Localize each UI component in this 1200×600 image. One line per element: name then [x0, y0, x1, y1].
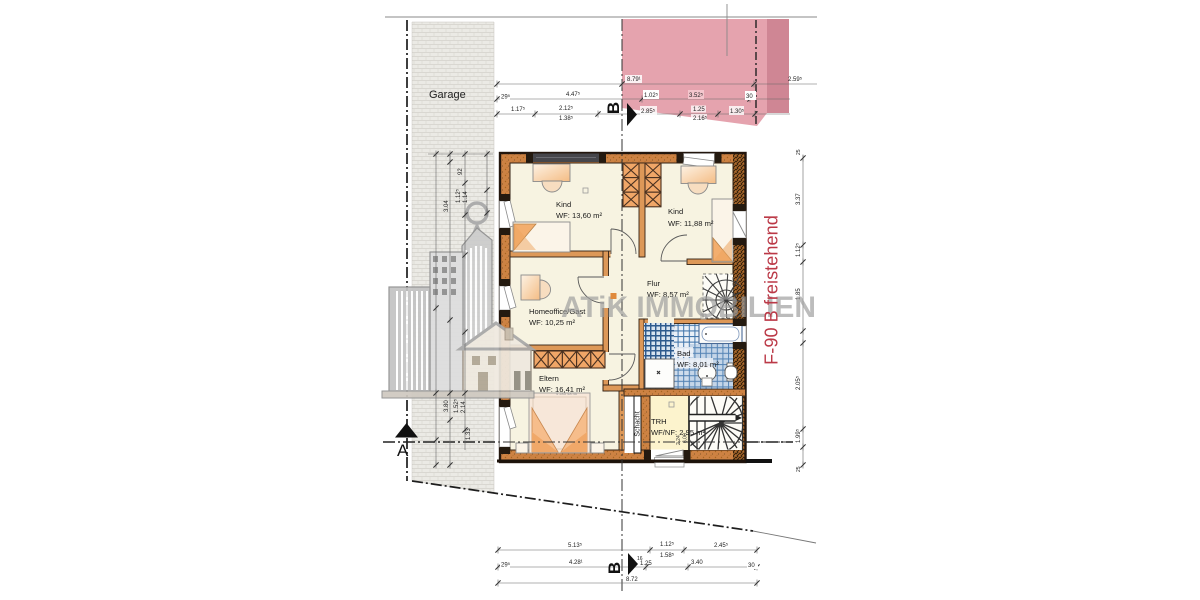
- svg-text:29⁵: 29⁵: [501, 562, 511, 569]
- svg-text:2.16⁵: 2.16⁵: [693, 115, 708, 122]
- svg-text:8.72: 8.72: [626, 577, 638, 583]
- svg-text:1.12⁵: 1.12⁵: [660, 541, 675, 548]
- svg-text:Eltern: Eltern: [539, 374, 559, 383]
- svg-text:30: 30: [748, 563, 755, 569]
- svg-text:1.30⁵: 1.30⁵: [730, 108, 745, 115]
- svg-text:3.04: 3.04: [444, 200, 450, 212]
- svg-text:1.12⁵: 1.12⁵: [455, 188, 462, 203]
- svg-text:1.99⁵: 1.99⁵: [795, 428, 802, 443]
- svg-text:3.52⁵: 3.52⁵: [689, 92, 704, 99]
- svg-text:5.13⁵: 5.13⁵: [568, 542, 583, 549]
- svg-text:1.25: 1.25: [640, 561, 652, 567]
- svg-text:WF: 8,01 m²: WF: 8,01 m²: [677, 360, 719, 369]
- svg-text:1.17⁵: 1.17⁵: [511, 106, 526, 113]
- svg-text:25: 25: [796, 466, 802, 472]
- svg-text:1.33: 1.33: [466, 428, 472, 440]
- svg-text:Kind: Kind: [668, 207, 683, 216]
- svg-text:25: 25: [796, 149, 802, 155]
- svg-text:2.85⁵: 2.85⁵: [641, 108, 656, 115]
- svg-text:2.12⁵: 2.12⁵: [559, 105, 574, 112]
- svg-text:WF: 11,88 m²: WF: 11,88 m²: [668, 219, 714, 228]
- svg-text:3.37: 3.37: [796, 193, 802, 205]
- svg-text:2,24: 2,24: [676, 435, 682, 445]
- svg-text:1.02⁵: 1.02⁵: [644, 92, 659, 99]
- svg-text:30: 30: [746, 94, 753, 100]
- svg-text:3.40: 3.40: [691, 560, 703, 566]
- svg-text:2.59⁵: 2.59⁵: [788, 76, 803, 83]
- svg-text:1.14: 1.14: [463, 191, 469, 203]
- svg-text:1.38⁵: 1.38⁵: [559, 115, 574, 122]
- svg-text:2.45⁵: 2.45⁵: [714, 542, 729, 549]
- svg-text:2.14: 2.14: [461, 401, 467, 413]
- svg-text:Schacht: Schacht: [635, 411, 642, 436]
- svg-text:1.12⁵: 1.12⁵: [795, 242, 802, 257]
- svg-text:29⁵: 29⁵: [501, 94, 511, 101]
- svg-text:TRH: TRH: [651, 417, 667, 426]
- svg-text:92: 92: [458, 168, 464, 175]
- svg-text:8.79¹: 8.79¹: [627, 77, 641, 83]
- svg-text:WF: 16,41 m²: WF: 16,41 m²: [539, 385, 585, 394]
- svg-text:4.47⁵: 4.47⁵: [566, 91, 581, 98]
- svg-text:Kind: Kind: [556, 200, 571, 209]
- svg-text:Garage: Garage: [429, 89, 466, 101]
- svg-text:1.25: 1.25: [693, 107, 705, 113]
- svg-text:1.52⁵: 1.52⁵: [453, 398, 460, 413]
- svg-text:Flur: Flur: [647, 279, 661, 288]
- svg-text:WF: 13,60 m²: WF: 13,60 m²: [556, 211, 602, 220]
- svg-text:B: B: [605, 562, 624, 574]
- svg-text:F-90 B freistehend: F-90 B freistehend: [762, 215, 782, 365]
- svg-text:3.80: 3.80: [444, 400, 450, 412]
- svg-text:Bad: Bad: [677, 349, 691, 358]
- svg-text:4.28¹: 4.28¹: [569, 560, 583, 566]
- svg-text:2.05⁵: 2.05⁵: [795, 375, 802, 390]
- svg-text:B: B: [604, 102, 623, 114]
- svg-text:1.58⁵: 1.58⁵: [660, 552, 675, 559]
- svg-text:A: A: [397, 441, 409, 460]
